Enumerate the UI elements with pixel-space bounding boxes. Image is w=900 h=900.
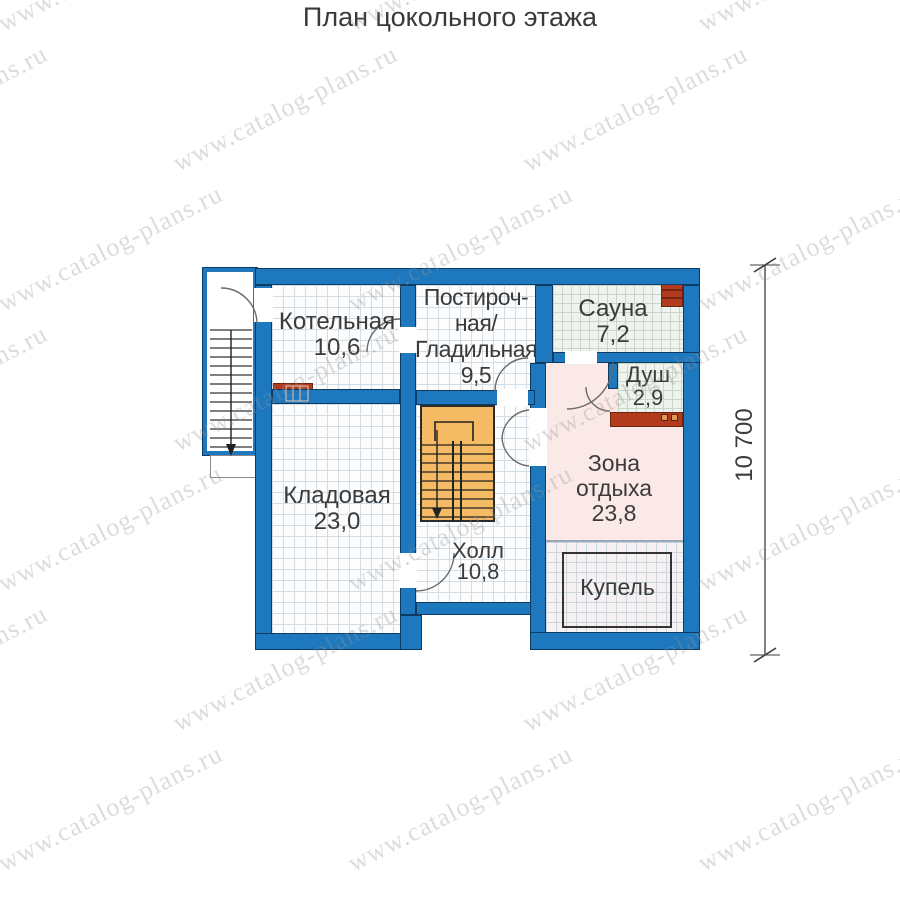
wall-right (683, 285, 700, 650)
room-name: Кладовая (262, 483, 412, 509)
watermark-text: www.catalog-plans.ru (0, 599, 53, 738)
room-area: 10,6 (262, 335, 412, 361)
wall-kupel-bottom (530, 632, 700, 650)
bench-detail-icon (661, 414, 668, 421)
exterior-stairs-landing (210, 455, 257, 478)
watermark-text: www.catalog-plans.ru (343, 739, 578, 878)
room-area: 2,9 (604, 386, 692, 409)
room-name: Котельная (262, 309, 412, 335)
watermark-text: www.catalog-plans.ru (693, 739, 900, 878)
watermark-text: www.catalog-plans.ru (0, 319, 53, 458)
room-name: ная/ (406, 310, 546, 336)
room-name: Купель (555, 575, 680, 599)
floor-plan-page: План цокольного этажа (0, 0, 900, 900)
wall-notch-left (400, 615, 422, 650)
watermark-text: www.catalog-plans.ru (693, 459, 900, 598)
room-label-kladovaya: Кладовая 23,0 (262, 483, 412, 535)
room-name: Душ (604, 363, 692, 386)
room-label-hall: Холл 10,8 (420, 540, 536, 582)
room-label-dush: Душ 2,9 (604, 363, 692, 409)
room-name: Сауна (548, 296, 678, 322)
bench-detail-icon (671, 414, 678, 421)
wall-hall-bottom (416, 602, 546, 615)
wall-top (255, 268, 700, 285)
watermark-text: www.catalog-plans.ru (0, 179, 228, 318)
room-area: 23,8 (545, 501, 683, 526)
kladovaya-door-opening (399, 553, 417, 588)
exterior-stairwell (203, 268, 257, 455)
wall-kotelnaya-bottom (272, 389, 400, 404)
sauna-door-opening (565, 351, 597, 364)
watermark-text: www.catalog-plans.ru (0, 39, 53, 178)
watermark-text: www.catalog-plans.ru (518, 39, 753, 178)
interior-stairs (420, 405, 495, 522)
room-label-postirochnaya: Постироч- ная/ Гладильная 9,5 (406, 284, 546, 388)
watermark-text: www.catalog-plans.ru (0, 459, 228, 598)
wall-bottom-left (255, 633, 416, 650)
room-name: Гладильная (406, 336, 546, 362)
room-label-kupel: Купель (555, 575, 680, 599)
postirochnaya-door-opening (497, 389, 528, 406)
room-name: отдыха (545, 476, 683, 501)
room-area: 23,0 (262, 509, 412, 535)
watermark-text: www.catalog-plans.ru (0, 739, 228, 878)
room-area: 7,2 (548, 322, 678, 348)
page-title: План цокольного этажа (0, 2, 900, 33)
room-area: 9,5 (406, 362, 546, 388)
dimension-value: 10 700 (731, 380, 759, 510)
dimension-tick-bottom (754, 648, 776, 662)
watermark-text: www.catalog-plans.ru (168, 39, 403, 178)
wall-zone-left (530, 363, 546, 650)
room-name: Зона (545, 451, 683, 476)
watermark-text: www.catalog-plans.ru (693, 179, 900, 318)
room-label-kotelnaya: Котельная 10,6 (262, 309, 412, 361)
room-name: Постироч- (406, 284, 546, 310)
room-label-sauna: Сауна 7,2 (548, 296, 678, 348)
room-area: 10,8 (420, 561, 536, 582)
room-label-zona-otdyha: Зона отдыха 23,8 (545, 451, 683, 526)
room-name: Холл (420, 540, 536, 561)
dimension-tick-top (754, 258, 776, 272)
